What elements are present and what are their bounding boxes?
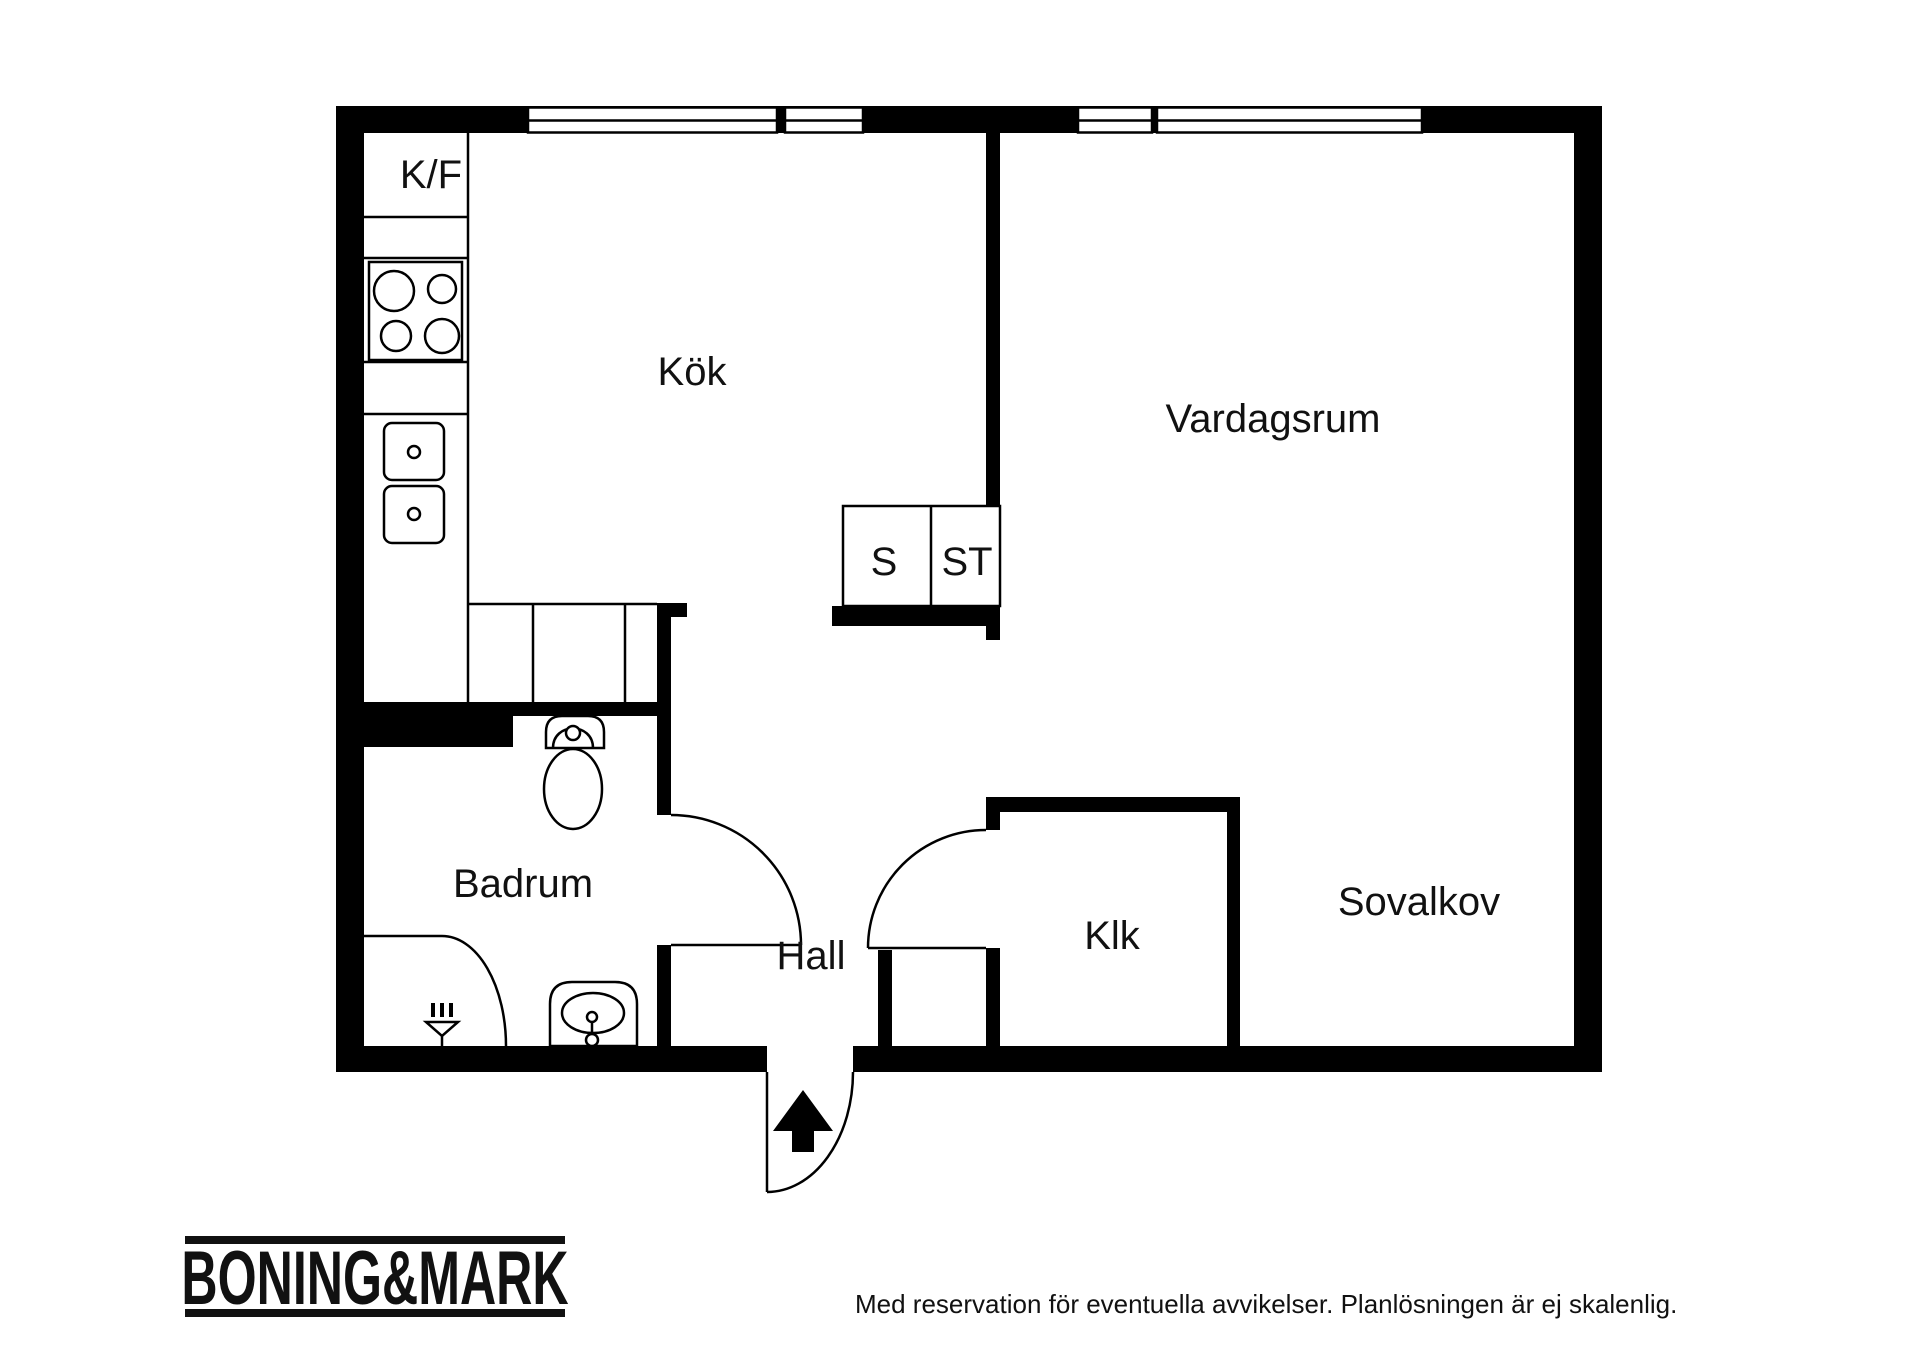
- floorplan-drawing: K/F Kök Vardagsrum S ST Badrum Hall Klk …: [0, 0, 1920, 1357]
- window: [785, 108, 863, 133]
- footer: BONING&MARK Med reservation för eventuel…: [181, 1236, 1677, 1321]
- window: [1157, 108, 1422, 133]
- label-klk: Klk: [1084, 914, 1141, 958]
- label-badrum: Badrum: [453, 862, 593, 906]
- window: [528, 108, 777, 133]
- label-sovalkov: Sovalkov: [1338, 880, 1500, 924]
- kitchen-counter: [364, 133, 657, 702]
- label-st: ST: [941, 540, 992, 584]
- wall-klk-left-corner: [986, 812, 1000, 830]
- door-swing-badrum: [671, 815, 801, 945]
- sink-icon: [550, 982, 637, 1046]
- toilet-icon: [544, 716, 604, 829]
- wall-badrum-top: [364, 702, 671, 716]
- drawer-unit-icon: [384, 423, 444, 543]
- wall-entrance-stub: [878, 950, 892, 1046]
- floor-drain-icon: [426, 1003, 458, 1046]
- wall-hall-lower: [657, 945, 671, 1046]
- wall-bottom-right: [853, 1046, 1602, 1072]
- wall-right: [1574, 106, 1602, 1072]
- label-s: S: [871, 540, 898, 584]
- interior-walls: [364, 133, 1240, 1046]
- wall-sst-bottom: [832, 606, 1000, 626]
- room-labels: K/F Kök Vardagsrum S ST Badrum Hall Klk …: [400, 153, 1500, 978]
- label-kf: K/F: [400, 153, 462, 197]
- disclaimer-text: Med reservation för eventuella avvikelse…: [855, 1289, 1677, 1319]
- entrance-arrow-icon: [773, 1090, 833, 1152]
- wall-klk-left-lower: [986, 948, 1000, 1046]
- stove-icon: [369, 262, 462, 360]
- label-kok: Kök: [658, 350, 728, 394]
- window: [1078, 108, 1152, 133]
- wall-bottom-left: [336, 1046, 767, 1072]
- doors: [671, 815, 986, 1192]
- wall-badrum-top-thick: [364, 716, 513, 747]
- logo-rule-bottom: [185, 1309, 565, 1317]
- door-swing-klk: [868, 830, 986, 948]
- wall-left: [336, 106, 364, 1072]
- label-hall: Hall: [777, 934, 846, 978]
- floorplan-page: K/F Kök Vardagsrum S ST Badrum Hall Klk …: [0, 0, 1920, 1357]
- logo-text: BONING&MARK: [181, 1236, 568, 1321]
- wall-klk-right: [1227, 812, 1240, 1046]
- wall-kok-vardagsrum: [986, 133, 1000, 506]
- label-vardagsrum: Vardagsrum: [1166, 397, 1381, 441]
- wall-klk-top: [986, 797, 1240, 812]
- brand-logo: BONING&MARK: [181, 1236, 568, 1321]
- wall-kok-vardagsrum-end: [986, 626, 1000, 640]
